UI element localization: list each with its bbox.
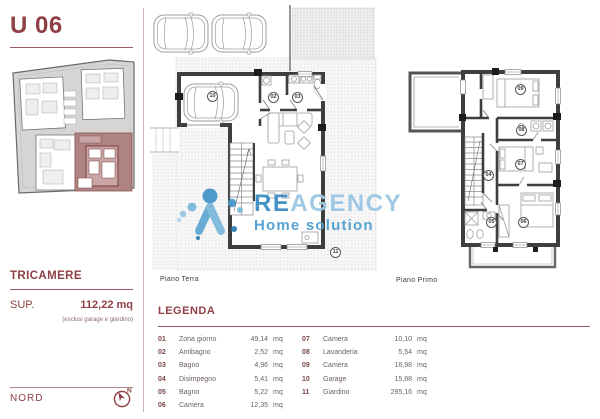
entrance-mask	[320, 84, 326, 101]
surface-row: SUP. 112,22 mq	[10, 299, 133, 311]
legend-item-value: 4,96	[241, 359, 271, 372]
legend-item-unit: mq	[417, 333, 433, 346]
wardrobe-icon	[483, 75, 493, 99]
north-label: NORD	[10, 393, 43, 404]
legend-item-value: 49,14	[241, 333, 271, 346]
legend-item-name: Bagno	[179, 359, 239, 372]
room-number-label-lavanderia: 08	[516, 125, 527, 136]
legend-row: 07Camera10,10mq	[302, 333, 428, 346]
brand-text: REAGENCY Home solution	[254, 186, 402, 242]
type-rule	[10, 289, 133, 290]
title-rule	[10, 47, 133, 48]
legend-item-name: Bagno	[179, 386, 239, 399]
legend-item-number: 07	[302, 333, 321, 346]
room-number-label-giardino: 11	[330, 247, 341, 258]
plan-caption-first: Piano Primo	[396, 277, 437, 284]
neighbor-lot-area	[292, 8, 374, 59]
room-number-label-bagno: 03	[292, 92, 303, 103]
legend-row: 08Lavanderia5,54mq	[302, 346, 428, 359]
nightstand-icon	[536, 147, 543, 154]
legend-item-number: 01	[158, 333, 177, 346]
legend-item-unit: mq	[273, 333, 289, 346]
balcony	[470, 245, 555, 267]
legend-item-value: 2,52	[241, 346, 271, 359]
legend-item-name: Disimpegno	[179, 373, 239, 386]
legend-rule	[158, 326, 590, 327]
brand-tagline: Home solution	[254, 218, 402, 233]
dryer-icon	[543, 121, 553, 131]
site-building-a	[20, 77, 66, 130]
legend-item-name: Lavanderia	[323, 346, 383, 359]
room-number-label-camera9: 09	[515, 84, 526, 95]
legend-row: 10Garage15,88mq	[302, 373, 428, 386]
brand-logo-icon	[176, 186, 248, 242]
legend-item-unit: mq	[417, 346, 433, 359]
garage-car-icon	[184, 82, 238, 123]
legend-row: 03Bagno4,96mq	[158, 359, 288, 372]
legend-item-number: 06	[158, 399, 177, 412]
legend-row: 04Disimpegno5,41mq	[158, 373, 288, 386]
legend-row: 06Camera12,35mq	[158, 399, 288, 412]
compass-north-icon: N	[110, 385, 136, 411]
legend-row: 01Zona giorno49,14mq	[158, 333, 288, 346]
desk-icon	[539, 163, 552, 172]
legend-column-1: 01Zona giorno49,14mq02Antibagno2,52mq03B…	[158, 333, 288, 412]
first-floor-plan	[393, 55, 563, 285]
staircase	[465, 137, 483, 205]
legend-row: 02Antibagno2,52mq	[158, 346, 288, 359]
legend-item-number: 03	[158, 359, 177, 372]
brand-name-secondary: AGENCY	[290, 190, 402, 217]
legend-item-value: 295,16	[385, 386, 415, 399]
driveway	[150, 127, 179, 153]
legend-row: 05Bagno5,22mq	[158, 386, 288, 399]
legend-item-name: Camera	[323, 359, 383, 372]
legend-item-value: 10,10	[385, 333, 415, 346]
surface-value: 112,22 mq	[80, 299, 133, 311]
legend-row: 09Camera16,98mq	[302, 359, 428, 372]
room-number-label-camera7: 07	[515, 159, 526, 170]
legend-item-number: 11	[302, 386, 321, 399]
room-number-label-bagno5: 05	[486, 217, 497, 228]
coffee-table-icon	[285, 131, 294, 144]
ground-floor-plan	[150, 5, 380, 295]
brand-name-primary: RE	[254, 190, 290, 217]
unit-type-label: TRICAMERE	[10, 270, 82, 282]
terrace	[410, 73, 463, 131]
shower-icon	[465, 212, 478, 225]
legend-item-unit: mq	[273, 386, 289, 399]
legend-item-number: 10	[302, 373, 321, 386]
legend-item-unit: mq	[273, 373, 289, 386]
room-number-label-antibagno: 02	[268, 92, 279, 103]
legend-item-name: Camera	[179, 399, 239, 412]
legend-item-unit: mq	[273, 399, 289, 412]
legend-row: 11Giardino295,16mq	[302, 386, 428, 399]
legend-item-value: 12,35	[241, 399, 271, 412]
legend-item-number: 02	[158, 346, 177, 359]
legend-item-number: 05	[158, 386, 177, 399]
legend-item-unit: mq	[417, 386, 433, 399]
legend-item-unit: mq	[273, 346, 289, 359]
site-building-b	[81, 68, 125, 119]
car-icon	[212, 13, 266, 54]
legend-title: LEGENDA	[158, 305, 215, 317]
legend-item-name: Camera	[323, 333, 383, 346]
legend-column-2: 07Camera10,10mq08Lavanderia5,54mq09Camer…	[302, 333, 428, 399]
legend-item-name: Antibagno	[179, 346, 239, 359]
legend-item-value: 5,41	[241, 373, 271, 386]
legend-item-value: 15,88	[385, 373, 415, 386]
parking-cars	[154, 13, 266, 54]
brand-watermark: REAGENCY Home solution	[176, 186, 402, 242]
svg-text:N: N	[127, 388, 132, 395]
legend-item-unit: mq	[273, 359, 289, 372]
legend-item-unit: mq	[417, 359, 433, 372]
toilet-icon	[314, 75, 321, 79]
legend-item-unit: mq	[417, 373, 433, 386]
legend-item-name: Giardino	[323, 386, 383, 399]
legend-item-number: 04	[158, 373, 177, 386]
legend-item-value: 5,54	[385, 346, 415, 359]
plan-caption-ground: Piano Terra	[160, 276, 199, 283]
brand-name: REAGENCY	[254, 191, 402, 217]
legend-item-number: 08	[302, 346, 321, 359]
room-number-label-garage: 10	[207, 91, 218, 102]
surface-note: (esclusi garage e giardino)	[10, 317, 133, 323]
room-number-label-camera6: 06	[518, 217, 529, 228]
legend-item-name: Zona giorno	[179, 333, 239, 346]
site-plan-thumbnail	[10, 57, 137, 196]
site-building-c	[36, 135, 75, 190]
legend-item-value: 5,22	[241, 386, 271, 399]
car-icon	[154, 13, 208, 54]
site-unit-highlight	[75, 133, 132, 191]
legend-item-name: Garage	[323, 373, 383, 386]
unit-title: U 06	[10, 12, 63, 40]
washer-icon	[531, 121, 541, 131]
room-number-label-disimpegno: 04	[483, 170, 494, 181]
legend-item-number: 09	[302, 359, 321, 372]
surface-label: SUP.	[10, 299, 34, 311]
sidebar-divider	[143, 8, 144, 412]
brochure-page: U 06	[0, 0, 600, 419]
legend-item-value: 16,98	[385, 359, 415, 372]
